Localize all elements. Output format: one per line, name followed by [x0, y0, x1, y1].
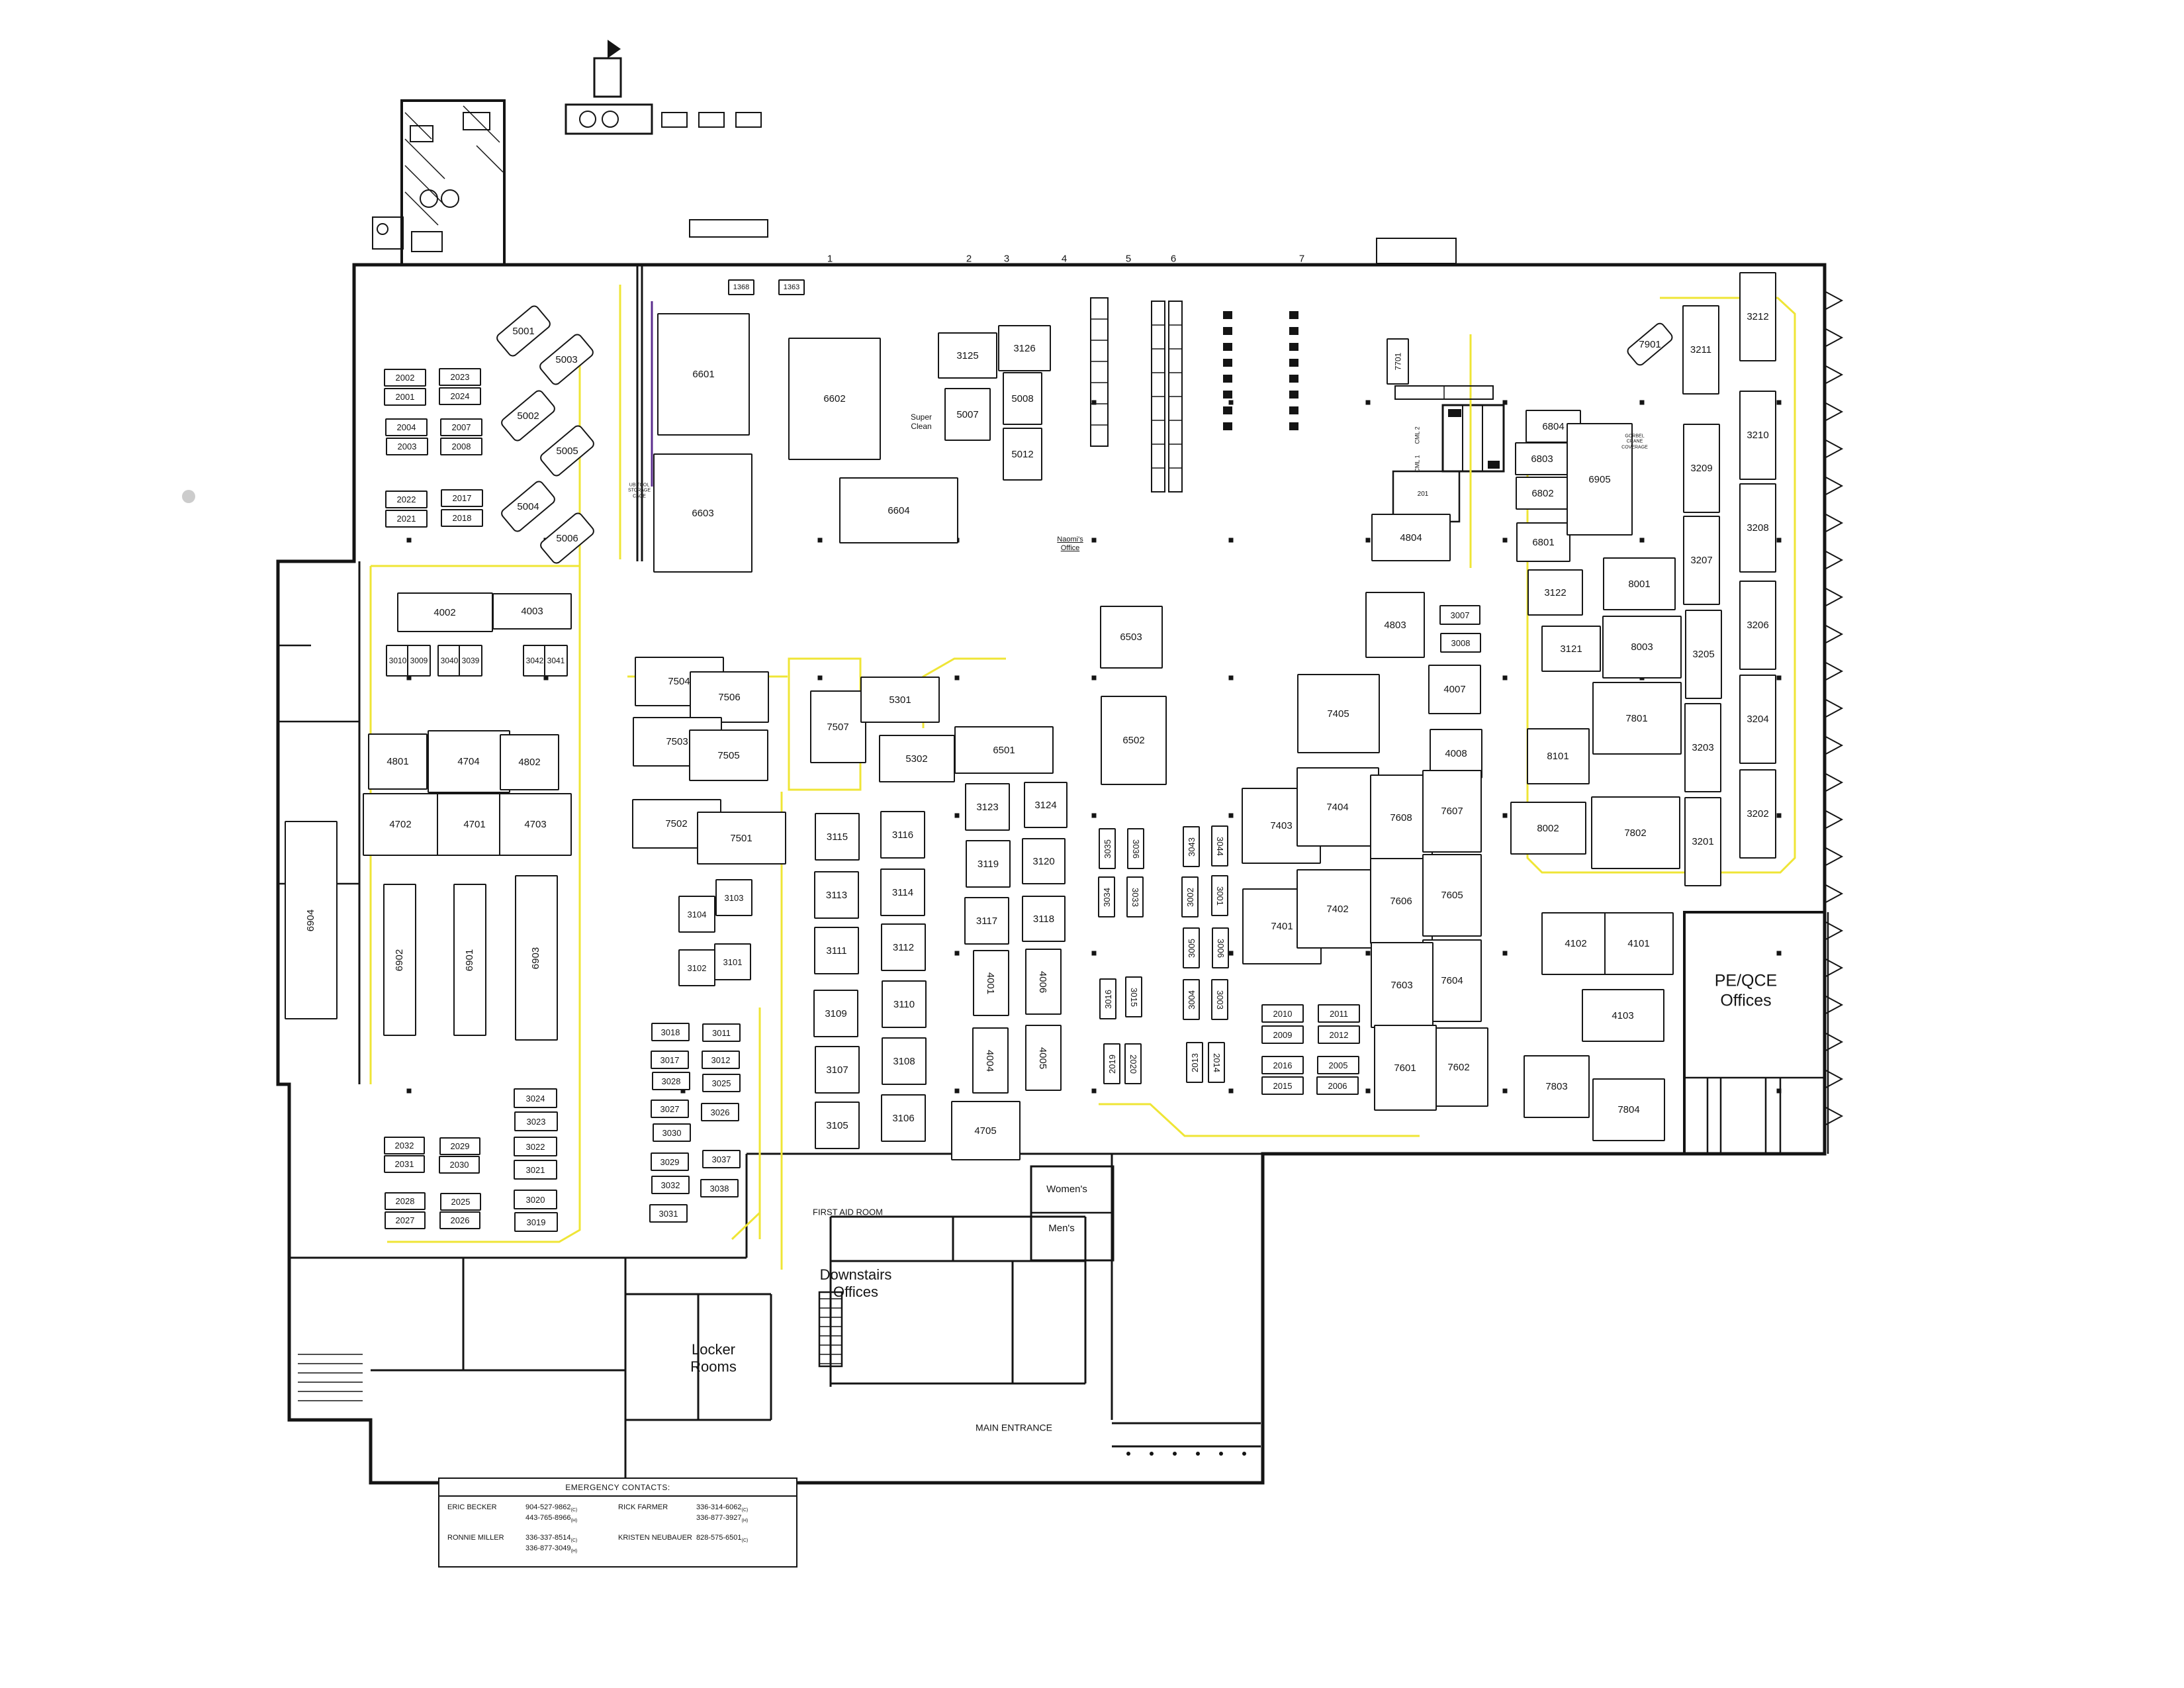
machine-5008: 5008	[1003, 372, 1042, 425]
machine-number: 3112	[893, 943, 914, 953]
machine-2008: 2008	[440, 438, 482, 455]
machine-number: 5008	[1011, 394, 1033, 404]
machine-number: 3111	[826, 946, 846, 956]
machine-number: 3006	[1216, 939, 1225, 958]
machine-4006: 4006	[1025, 949, 1062, 1015]
machine-number: 5302	[905, 754, 927, 764]
machine-number: 3028	[662, 1077, 681, 1086]
machine-4705: 4705	[951, 1101, 1021, 1160]
machine-3125: 3125	[938, 332, 997, 379]
machine-3022: 3022	[514, 1137, 557, 1156]
machine-1368: 1368	[728, 279, 754, 295]
machine-number: 6502	[1122, 735, 1144, 745]
machine-number: 7403	[1270, 821, 1292, 831]
machine-4802: 4802	[500, 734, 559, 790]
machine-6801: 6801	[1516, 522, 1570, 562]
machine-number: 7507	[827, 722, 848, 732]
machine-number: 2020	[1129, 1055, 1138, 1074]
machine-1363: 1363	[778, 279, 805, 295]
machine-number: 7604	[1441, 976, 1463, 986]
machine-number: 3041	[547, 657, 565, 665]
machine-number: 2015	[1273, 1082, 1293, 1090]
machine-2014: 2014	[1208, 1042, 1225, 1083]
machine-3003: 3003	[1211, 979, 1228, 1020]
machine-4102: 4102	[1541, 912, 1611, 975]
machine-7603: 7603	[1371, 942, 1433, 1028]
machine-3124: 3124	[1024, 782, 1068, 828]
machine-number: 6901	[465, 949, 475, 970]
machine-number: 6601	[692, 369, 714, 379]
machine-number: 7405	[1327, 709, 1349, 719]
machine-number: 3036	[1132, 839, 1140, 859]
machine-number: 3206	[1747, 620, 1768, 630]
machine-number: 2021	[397, 514, 416, 523]
machine-number: 2025	[451, 1197, 471, 1206]
machine-number: 4804	[1400, 533, 1422, 543]
machine-3110: 3110	[882, 980, 927, 1028]
machine-4801: 4801	[368, 733, 428, 790]
machine-3009: 3009	[407, 645, 431, 677]
machine-number: 6801	[1532, 538, 1554, 547]
machine-number: 3037	[712, 1155, 731, 1164]
machine-3111: 3111	[814, 927, 859, 974]
machine-7507: 7507	[810, 690, 866, 763]
machine-3012: 3012	[702, 1051, 740, 1069]
machine-3115: 3115	[815, 813, 860, 861]
grid-column-3: 3	[1004, 254, 1009, 265]
machine-3008: 3008	[1440, 633, 1481, 653]
machine-6803: 6803	[1515, 442, 1569, 475]
grid-column-7: 7	[1299, 254, 1304, 265]
machine-2030: 2030	[439, 1156, 480, 1174]
grid-column-4: 4	[1062, 254, 1067, 265]
machine-2029: 2029	[439, 1137, 480, 1155]
machine-3017: 3017	[651, 1051, 689, 1069]
machine-8003: 8003	[1602, 616, 1682, 679]
machine-number: 3023	[527, 1117, 546, 1126]
machine-number: 3204	[1747, 714, 1768, 724]
machine-number: 7404	[1326, 802, 1348, 812]
machine-number: 3120	[1032, 857, 1054, 867]
machine-number: 3102	[688, 964, 707, 972]
area-label-first-aid-room: FIRST AID ROOM	[813, 1207, 883, 1217]
machine-number: 3201	[1692, 837, 1713, 847]
machine-number: 6905	[1588, 475, 1610, 485]
phone-type-tag: (C)	[742, 1508, 749, 1513]
machine-number: 3034	[1103, 888, 1111, 907]
machine-3036: 3036	[1127, 828, 1144, 869]
grid-column-5: 5	[1126, 254, 1131, 265]
machine-3025: 3025	[702, 1074, 741, 1092]
machine-8101: 8101	[1527, 728, 1590, 784]
machine-number: 2003	[398, 442, 417, 451]
machine-number: 3024	[526, 1094, 545, 1103]
machine-number: 3122	[1544, 588, 1566, 598]
machine-number: 3205	[1692, 649, 1714, 659]
machine-3040: 3040	[437, 645, 461, 677]
machine-number: 7801	[1625, 714, 1647, 724]
machine-2020: 2020	[1124, 1043, 1142, 1084]
phone-type-tag: (H)	[571, 1519, 578, 1523]
area-label-super: Super Clean	[911, 412, 932, 431]
machine-4003: 4003	[492, 593, 572, 630]
machine-3204: 3204	[1739, 675, 1776, 764]
machine-number: 3032	[661, 1181, 680, 1190]
machine-2009: 2009	[1261, 1025, 1304, 1044]
machine-number: 4003	[521, 606, 543, 616]
machine-2005: 2005	[1317, 1056, 1359, 1074]
machine-3211: 3211	[1682, 305, 1719, 395]
machine-3035: 3035	[1099, 828, 1116, 869]
machine-number: 3207	[1690, 555, 1712, 565]
area-label-downstairs: Downstairs Offices	[820, 1266, 892, 1301]
machine-4702: 4702	[363, 793, 439, 856]
machine-2024: 2024	[439, 387, 481, 405]
machine-cml-1: CML 1	[1412, 449, 1424, 478]
machine-7402: 7402	[1297, 869, 1379, 949]
machine-3122: 3122	[1527, 569, 1583, 616]
machine-number: 3011	[712, 1029, 731, 1037]
machine-3001: 3001	[1211, 875, 1228, 916]
machine-cml-2: CML 2	[1412, 420, 1424, 449]
machine-7405: 7405	[1297, 674, 1380, 753]
machine-3007: 3007	[1439, 605, 1480, 625]
machine-number: 7601	[1394, 1063, 1416, 1073]
machine-number: 6603	[692, 508, 713, 518]
machine-number: 4005	[1038, 1047, 1048, 1068]
machine-number: 201	[1418, 491, 1429, 498]
machine-number: 3203	[1692, 743, 1713, 753]
machine-number: 2027	[396, 1216, 415, 1225]
machine-number: 2012	[1330, 1031, 1349, 1039]
area-label-main-entrance: MAIN ENTRANCE	[976, 1423, 1052, 1434]
machine-3020: 3020	[514, 1190, 557, 1209]
machine-number: 6904	[306, 909, 316, 931]
machine-number: 3126	[1013, 344, 1035, 353]
machine-4002: 4002	[397, 592, 493, 632]
machine-3006: 3006	[1212, 927, 1229, 968]
machine-number: 4704	[457, 757, 479, 767]
machine-2006: 2006	[1316, 1076, 1359, 1095]
machine-number: 6903	[531, 947, 541, 968]
machine-number: 7701	[1394, 353, 1402, 371]
phone-type-tag: (H)	[571, 1549, 578, 1554]
machine-number: 6902	[395, 949, 405, 970]
machine-7601: 7601	[1374, 1025, 1437, 1111]
machine-number: 8001	[1628, 579, 1650, 589]
machine-2012: 2012	[1318, 1025, 1360, 1044]
machine-number: 2005	[1329, 1061, 1348, 1070]
machine-number: 5002	[517, 411, 539, 421]
machine-4803: 4803	[1365, 592, 1425, 658]
machine-number: 3209	[1690, 463, 1712, 473]
machine-4804: 4804	[1371, 514, 1451, 561]
machine-number: 2009	[1273, 1031, 1293, 1039]
machine-3028: 3028	[652, 1072, 690, 1090]
machine-number: 4008	[1445, 749, 1467, 759]
machine-3041: 3041	[544, 645, 568, 677]
machine-number: CML 2	[1415, 426, 1421, 444]
machine-6603: 6603	[653, 453, 752, 573]
machine-3011: 3011	[702, 1023, 741, 1042]
machine-number: 2029	[451, 1142, 470, 1150]
machine-2002: 2002	[384, 369, 426, 387]
machine-number: 5007	[956, 410, 978, 420]
machine-number: 7901	[1639, 340, 1661, 350]
machine-number: 6804	[1542, 422, 1564, 432]
machine-number: 3040	[441, 657, 459, 665]
machine-number: 3104	[688, 910, 707, 919]
machine-6502: 6502	[1101, 696, 1167, 785]
machine-number: 3044	[1216, 837, 1224, 856]
machine-7605: 7605	[1422, 854, 1482, 937]
machine-4004: 4004	[972, 1027, 1009, 1094]
machine-2031: 2031	[384, 1155, 425, 1173]
machine-2023: 2023	[439, 368, 481, 386]
machine-number: 7607	[1441, 806, 1463, 816]
machine-3019: 3019	[514, 1212, 558, 1232]
machine-number: 3125	[956, 351, 978, 361]
machine-number: 2017	[453, 494, 472, 502]
machine-2026: 2026	[439, 1211, 480, 1229]
machine-2010: 2010	[1261, 1004, 1304, 1023]
area-label-gorbel: GORBEL CRANE COVERAGE	[1621, 434, 1648, 451]
machine-number: 5012	[1011, 449, 1033, 459]
machine-2004: 2004	[385, 418, 428, 436]
machine-number: 2002	[396, 373, 415, 382]
contact-phones: 336-337-8514(C)336-877-3049(H)	[525, 1534, 618, 1555]
machine-number: CML 1	[1415, 455, 1421, 472]
machine-number: 7608	[1390, 813, 1412, 823]
machine-number: 3005	[1187, 939, 1196, 958]
machine-3033: 3033	[1126, 876, 1144, 917]
machine-number: 4803	[1384, 620, 1406, 630]
machine-3101: 3101	[714, 943, 751, 980]
machine-number: 7803	[1545, 1082, 1567, 1092]
contact-phones: 904-527-9862(C)443-765-8966(H)	[525, 1503, 618, 1524]
phone-type-tag: (C)	[571, 1508, 578, 1513]
machine-number: 3107	[826, 1065, 848, 1075]
machine-3123: 3123	[965, 783, 1010, 831]
emergency-contacts-box: EMERGENCY CONTACTS: ERIC BECKER904-527-9…	[438, 1477, 797, 1568]
machine-3107: 3107	[815, 1046, 860, 1094]
machine-3030: 3030	[653, 1123, 691, 1142]
machine-3118: 3118	[1022, 896, 1066, 942]
machine-number: 3109	[825, 1009, 846, 1019]
machine-number: 2032	[395, 1141, 414, 1150]
machine-number: 3211	[1690, 345, 1711, 355]
machine-3109: 3109	[813, 990, 858, 1037]
machine-8001: 8001	[1603, 557, 1676, 610]
machine-3034: 3034	[1098, 876, 1115, 917]
machine-3027: 3027	[651, 1100, 689, 1118]
machine-3105: 3105	[815, 1102, 860, 1149]
machine-number: 3003	[1216, 990, 1224, 1009]
machine-number: 3031	[659, 1209, 678, 1218]
machine-number: 7603	[1390, 980, 1412, 990]
phone-type-tag: (C)	[742, 1538, 749, 1543]
machine-number: 4002	[433, 608, 455, 618]
machine-number: 5301	[889, 695, 911, 705]
machine-number: 7804	[1617, 1105, 1639, 1115]
machine-3120: 3120	[1022, 838, 1066, 884]
machine-number: 3210	[1747, 430, 1768, 440]
machine-4005: 4005	[1025, 1025, 1062, 1091]
machine-2021: 2021	[385, 510, 428, 528]
machine-2028: 2028	[385, 1192, 426, 1210]
machine-number: 2018	[453, 514, 472, 522]
contact-name: RONNIE MILLER	[447, 1534, 525, 1555]
machine-7506: 7506	[690, 671, 769, 723]
machine-number: 3119	[978, 859, 999, 869]
machine-number: 4004	[985, 1049, 995, 1071]
contact-row: ERIC BECKER904-527-9862(C)443-765-8966(H…	[447, 1503, 791, 1524]
machine-3106: 3106	[881, 1094, 926, 1142]
machine-7607: 7607	[1422, 770, 1482, 853]
machine-number: 3004	[1187, 990, 1196, 1009]
machine-number: 3029	[660, 1158, 680, 1166]
machine-number: 3114	[892, 888, 913, 898]
machine-3005: 3005	[1183, 927, 1200, 968]
machine-6501: 6501	[954, 726, 1054, 774]
contact-name: RICK FARMER	[618, 1503, 696, 1524]
machine-3021: 3021	[514, 1160, 557, 1180]
machine-2013: 2013	[1186, 1042, 1203, 1083]
phone-type-tag: (C)	[571, 1538, 578, 1543]
facility-floor-plan: 2002200120232024200420032007200820222021…	[0, 0, 2184, 1688]
machine-6902: 6902	[383, 884, 416, 1036]
machine-number: 6503	[1120, 632, 1142, 642]
machine-number: 3025	[712, 1079, 731, 1088]
machine-number: 3108	[893, 1056, 915, 1066]
machine-number: 7502	[665, 819, 687, 829]
machine-3206: 3206	[1739, 581, 1776, 670]
machine-number: 6501	[993, 745, 1015, 755]
machine-4703: 4703	[499, 793, 572, 856]
machine-number: 3105	[826, 1121, 848, 1131]
machine-number: 7506	[718, 692, 740, 702]
machine-number: 2026	[451, 1216, 470, 1225]
machine-number: 1368	[733, 284, 749, 291]
machine-number: 5006	[556, 534, 578, 543]
machine-number: 2030	[450, 1160, 469, 1169]
machine-number: 3116	[892, 830, 913, 840]
machine-3116: 3116	[880, 811, 925, 859]
machine-number: 7606	[1390, 896, 1412, 906]
machine-3010: 3010	[386, 645, 410, 677]
machine-number: 3007	[1451, 611, 1470, 620]
machine-2025: 2025	[440, 1193, 481, 1211]
machine-number: 4701	[463, 820, 485, 829]
machine-3212: 3212	[1739, 272, 1776, 361]
machine-3015: 3015	[1125, 976, 1142, 1017]
phone-type-tag: (H)	[742, 1519, 749, 1523]
machine-number: 3042	[526, 657, 544, 665]
machine-number: 2024	[451, 392, 470, 400]
machine-7501: 7501	[697, 812, 786, 865]
machine-number: 3008	[1451, 639, 1471, 647]
machine-number: 2023	[451, 373, 470, 381]
machine-number: 5005	[556, 446, 578, 456]
machine-6601: 6601	[657, 313, 750, 436]
area-label-women-s: Women's	[1046, 1184, 1087, 1196]
machine-number: 5003	[555, 355, 577, 365]
machine-3205: 3205	[1685, 610, 1722, 699]
machine-3119: 3119	[966, 840, 1011, 888]
machine-number: 3021	[526, 1166, 545, 1174]
machine-number: 3035	[1103, 839, 1112, 859]
machine-3044: 3044	[1211, 825, 1228, 867]
machine-2011: 2011	[1318, 1004, 1360, 1023]
machine-number: 1363	[784, 284, 799, 291]
machine-number: 3015	[1130, 988, 1138, 1007]
emergency-contacts-rows: ERIC BECKER904-527-9862(C)443-765-8966(H…	[439, 1497, 796, 1555]
machine-3043: 3043	[1183, 826, 1200, 867]
machine-number: 2022	[397, 495, 416, 504]
machine-7602: 7602	[1429, 1027, 1488, 1107]
machine-number: 2013	[1191, 1053, 1199, 1072]
machine-number: 2028	[396, 1197, 415, 1205]
machine-3024: 3024	[514, 1088, 557, 1108]
machine-number: 3020	[526, 1196, 545, 1204]
machine-number: 3019	[527, 1218, 546, 1227]
machine-4103: 4103	[1582, 989, 1664, 1042]
area-label-pe-qce: PE/QCE Offices	[1715, 972, 1777, 1011]
machine-number: 4703	[524, 820, 546, 829]
machine-number: 6604	[887, 506, 909, 516]
machine-3113: 3113	[814, 871, 859, 919]
machine-6503: 6503	[1100, 606, 1163, 669]
machine-3114: 3114	[880, 868, 925, 916]
emergency-contacts-title: EMERGENCY CONTACTS:	[439, 1479, 796, 1497]
machine-number: 5001	[512, 326, 534, 336]
machine-6901: 6901	[453, 884, 486, 1036]
machine-2019: 2019	[1103, 1043, 1120, 1084]
machine-4704: 4704	[428, 730, 510, 793]
machine-3103: 3103	[715, 879, 752, 916]
machine-3004: 3004	[1183, 979, 1200, 1020]
machine-number: 7605	[1441, 890, 1463, 900]
machine-number: 3012	[711, 1056, 731, 1064]
machine-number: 5004	[517, 502, 539, 512]
machine-number: 8101	[1547, 751, 1569, 761]
machine-2007: 2007	[440, 418, 482, 436]
machine-number: 3123	[976, 802, 998, 812]
machine-number: 3110	[893, 1000, 915, 1009]
machine-2001: 2001	[384, 388, 426, 406]
machine-number: 7501	[730, 833, 752, 843]
machine-number: 2019	[1108, 1055, 1116, 1074]
machine-number: 3202	[1747, 809, 1768, 819]
machine-5012: 5012	[1003, 428, 1042, 481]
machine-number: 2007	[452, 423, 471, 432]
machine-4101: 4101	[1604, 912, 1674, 975]
machine-number: 3115	[827, 832, 848, 842]
machine-2017: 2017	[441, 489, 483, 507]
machine-number: 7802	[1624, 828, 1646, 838]
machine-4007: 4007	[1428, 665, 1481, 714]
machine-6602: 6602	[788, 338, 881, 460]
machine-7505: 7505	[689, 729, 768, 781]
machine-number: 4103	[1612, 1011, 1633, 1021]
machine-number: 3016	[1104, 990, 1113, 1009]
machine-number: 2004	[397, 423, 416, 432]
machine-3042: 3042	[523, 645, 547, 677]
machine-7801: 7801	[1592, 682, 1682, 755]
machine-number: 3113	[826, 890, 847, 900]
machine-number: 3009	[410, 657, 428, 665]
contact-phones: 828-575-6501(C)	[696, 1534, 789, 1555]
